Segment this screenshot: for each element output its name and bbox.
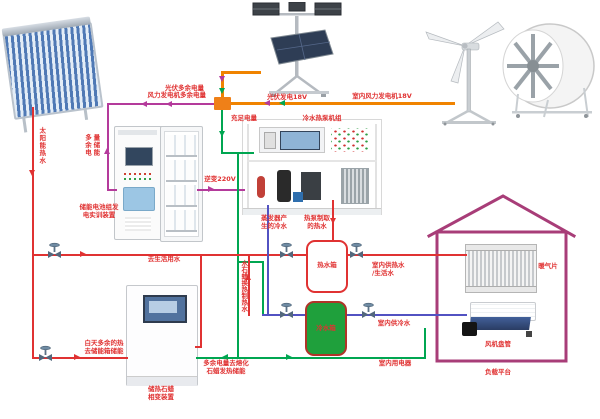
flow-arrow-surplus-left2 — [141, 101, 147, 107]
flow-arrow-surplus-left — [166, 101, 172, 107]
battery-shelf — [166, 135, 197, 157]
flow-arrow-inverter-right — [208, 186, 214, 192]
fan-coil-foot — [526, 331, 532, 337]
diagram-canvas: 热水箱 冷水箱 光伏多余电量 风力发电机多余电量 光伏发电18V 室内风力发电机… — [0, 0, 600, 419]
fan-coil-band — [469, 317, 531, 330]
bench-shelf — [247, 160, 377, 162]
cabinet-vent — [125, 217, 151, 231]
wind-tunnel-fan-image — [488, 16, 600, 120]
cabinet-vent — [118, 130, 157, 135]
wire-surplus-h — [107, 103, 217, 105]
label-indoor-wind-generator: 室内风力发电机18V — [350, 93, 414, 101]
screen-display — [149, 301, 177, 313]
battery-cabinet-image — [160, 126, 203, 242]
flow-arrow-storage-up — [104, 148, 110, 154]
label-radiator: 暖气片 — [536, 263, 560, 271]
wire-sufficient-v3 — [262, 261, 264, 316]
indicator-lights — [124, 173, 152, 175]
flow-arrow-domestic-right — [80, 251, 86, 257]
label-solar-hot-water: 太阳能热水 — [37, 125, 45, 167]
device-screen — [143, 295, 187, 323]
wire-surplus-into-cabinet — [107, 189, 117, 191]
pump — [293, 192, 303, 202]
control-cabinet-image — [114, 126, 163, 240]
flow-arrow-pv-down2 — [219, 88, 225, 94]
radiator-header — [466, 245, 536, 251]
pv-tracker-image — [233, 2, 363, 98]
wire-sufficient-v2 — [237, 152, 239, 359]
hot-water-tank: 热水箱 — [306, 240, 348, 293]
label-heat-pump-hot-water: 热泵制取 的热水 — [302, 215, 332, 231]
cabinet-module — [123, 187, 155, 211]
label-sufficient-power: 充足电量 — [227, 115, 261, 123]
label-load-platform: 负载平台 — [479, 369, 517, 377]
solar-collector-image — [2, 22, 103, 120]
label-wind-surplus: 风力发电机多余电量 — [144, 92, 206, 100]
indicator-lights — [124, 178, 152, 180]
label-battery-device: 储能电池组发 电实训装置 — [76, 204, 122, 220]
flow-arrow-pv-down — [219, 76, 225, 82]
label-pv-generation: 光伏发电18V — [262, 94, 312, 102]
label-fan-coil: 风机盘管 — [482, 341, 514, 349]
cold-water-tank-label: 冷水箱 — [307, 325, 345, 333]
fan-coil-motor — [462, 322, 477, 336]
bench-post — [375, 124, 377, 208]
wire-indoor-power-riser — [424, 328, 426, 359]
wire-surplus-v — [107, 103, 109, 191]
cabinet-screen — [125, 147, 153, 166]
flow-arrow-sufficient-down — [219, 131, 225, 137]
label-paraffin-exchange: 水石蜡换热制热水 — [239, 257, 247, 315]
collector-leg — [22, 116, 27, 132]
label-paraffin-device: 储热石蜡 相变装置 — [143, 386, 179, 402]
pipe-paraffin-heat-v — [248, 254, 250, 316]
label-to-domestic-water: 去生活用水 — [144, 256, 184, 264]
pipe-solar-v — [32, 107, 34, 359]
hot-water-tank-label: 热水箱 — [308, 262, 346, 270]
valve-icon — [39, 344, 52, 361]
radiator-header — [466, 286, 536, 292]
valve-icon — [280, 301, 293, 318]
label-evaporator-cold-water: 蒸发器产 生的冷水 — [258, 215, 290, 231]
cold-water-tank: 冷水箱 — [305, 301, 347, 356]
collector-manifold — [2, 16, 92, 36]
coil — [341, 168, 369, 204]
panel-screen — [280, 131, 320, 150]
label-indoor-cold-supply: 室内供冷水 — [375, 320, 413, 328]
battery-shelf — [166, 160, 197, 182]
flow-arrow-charge-right — [74, 354, 80, 360]
red-vessel — [257, 176, 265, 198]
bench-post — [247, 124, 249, 208]
radiator-image — [465, 244, 537, 293]
control-panel — [259, 127, 325, 153]
label-indoor-electric: 室内用电器 — [376, 360, 414, 368]
panel-buttons — [331, 128, 369, 152]
condenser-unit — [301, 172, 321, 200]
panel-gauge — [264, 132, 276, 149]
valve-icon — [362, 301, 375, 318]
pipe-storage-return-v — [200, 254, 202, 347]
label-heat-pump-unit: 冷水热泵机组 — [297, 115, 347, 123]
power-junction-box — [214, 97, 231, 110]
compressor — [277, 170, 291, 202]
flow-arrow-solar-down — [29, 170, 35, 176]
label-day-surplus-heat: 白天多余的热 去储能箱储能 — [82, 340, 126, 356]
flow-arrow-house-power-right — [286, 354, 292, 360]
valve-icon — [280, 241, 293, 258]
label-surplus-to-storage: 多余电量储能 — [83, 134, 100, 157]
paraffin-storage-device-image — [126, 285, 198, 386]
valve-icon — [48, 241, 61, 258]
wire-pv-drop-h — [221, 71, 261, 74]
heat-pump-bench-image — [242, 119, 382, 215]
label-inverter-220v: 逆变220V — [203, 176, 237, 184]
collector-leg — [83, 108, 88, 120]
fan-coil-image — [462, 302, 538, 339]
label-melt-paraffin: 多余电量去熔化 石蜡发热储能 — [200, 360, 252, 376]
battery-shelf — [166, 185, 197, 207]
valve-icon — [350, 241, 363, 258]
battery-shelf — [166, 210, 197, 232]
label-indoor-hot-supply: 室内供热水 /生活水 — [372, 262, 410, 278]
